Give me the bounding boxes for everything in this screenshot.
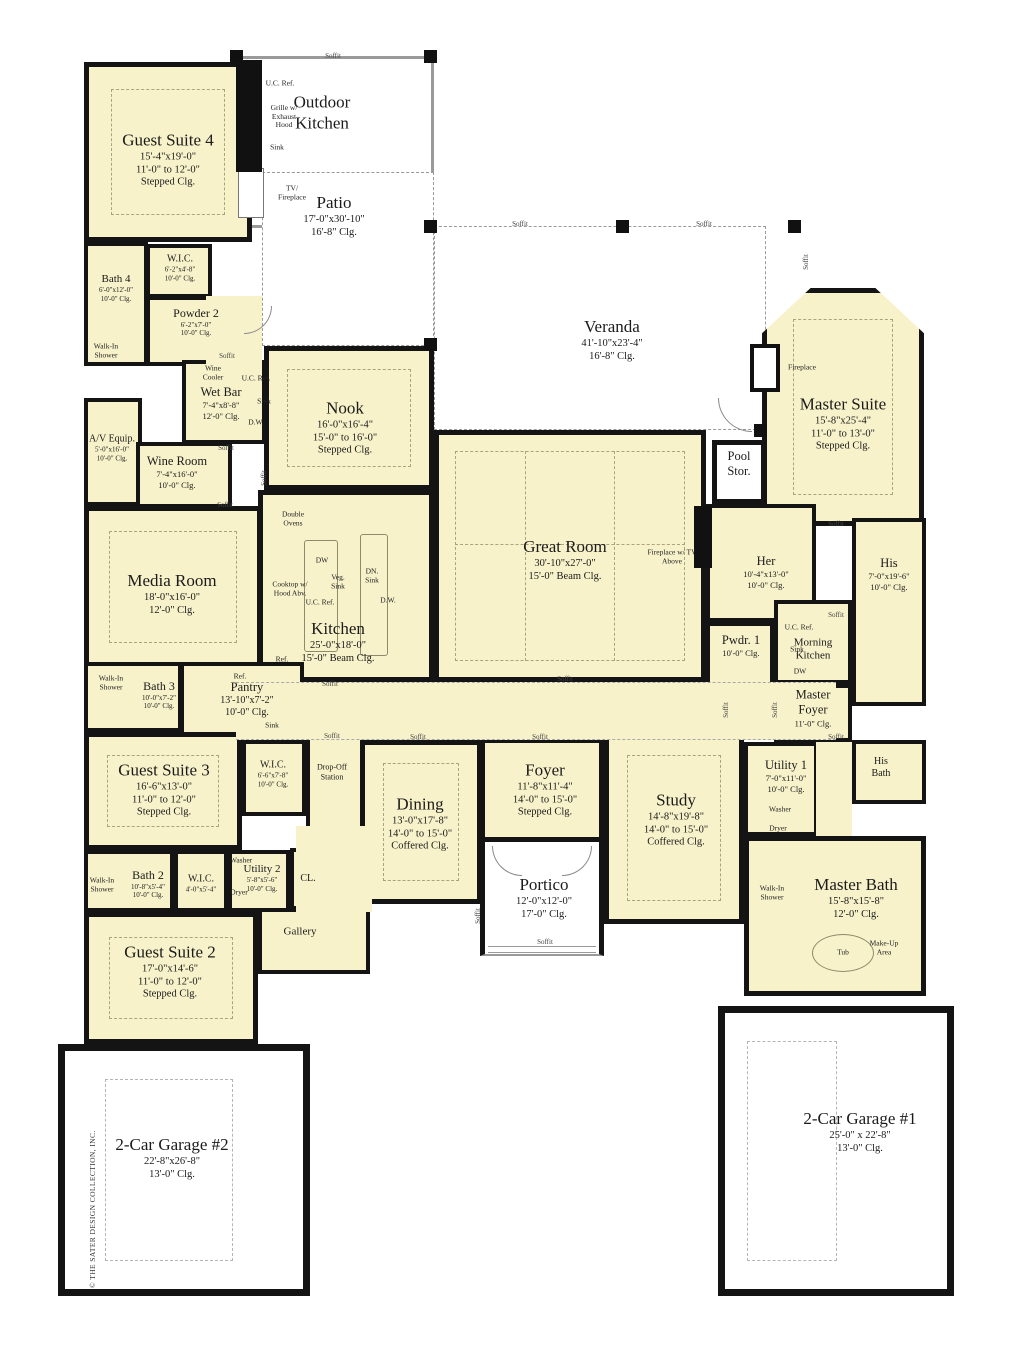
walk-in-shower-label: Walk-In Shower — [753, 884, 791, 901]
walk-in-shower-label: Walk-In Shower — [83, 876, 121, 893]
label-patio: Patio 17'-0"x30'-10" 16'-8" Clg. — [303, 193, 364, 239]
label-garage-1: 2-Car Garage #1 25'-0" x 22'-8" 13'-0" C… — [803, 1109, 916, 1155]
column — [616, 220, 629, 233]
label-his-closet: His 7'-0"x19'-6" 10'-0" Clg. — [868, 556, 909, 592]
fireplace-label: Fireplace — [788, 364, 816, 373]
label-his-bath: His Bath — [866, 756, 896, 780]
veg-sink-label: Veg. Sink — [325, 573, 351, 590]
dw-label: DW — [316, 557, 329, 566]
label-wet-bar: Wet Bar 7'-4"x8'-8" 12'-0" Clg. — [201, 385, 242, 421]
label-veranda: Veranda 41'-10"x23'-4" 16'-8" Clg. — [581, 317, 642, 363]
washer-label: Washer — [230, 857, 252, 866]
label-foyer: Foyer 11'-8"x11'-4" 14'-0" to 15'-0" Ste… — [513, 760, 577, 819]
label-pool-storage: Pool Stor. — [719, 449, 759, 480]
soffit-label: Soffit — [474, 908, 482, 924]
label-utility-2: Utility 2 5'-8"x5'-6" 10'-0" Clg. — [244, 863, 281, 893]
master-fireplace-box — [750, 344, 780, 392]
soffit-label: Soffit — [325, 52, 341, 60]
label-av-equip: A/V Equip. 5'-0"x16'-0" 10'-0" Clg. — [89, 433, 135, 462]
copyright-text: © THE SATER DESIGN COLLECTION, INC. — [88, 1130, 97, 1288]
column — [788, 220, 801, 233]
label-drop-off: Drop-Off Station — [310, 762, 354, 782]
column — [754, 424, 767, 437]
tv-fireplace-label: TV/ Fireplace — [272, 184, 312, 201]
label-gallery: Gallery — [284, 925, 317, 938]
dryer-label: Dryer — [230, 889, 248, 898]
soffit-label: Soffit — [219, 352, 235, 360]
label-master-bath: Master Bath 15'-8"x15'-8" 12'-0" Clg. — [814, 875, 898, 921]
walk-in-shower-label: Walk-In Shower — [92, 674, 130, 691]
label-master-foyer: Master Foyer 11'-0" Clg. — [788, 688, 838, 729]
soffit-label: Soffit — [322, 680, 338, 688]
dryer-label: Dryer — [769, 825, 787, 834]
outdoor-fireplace-box — [238, 168, 264, 218]
soffit-label: Soffit — [512, 220, 528, 228]
wine-cooler-label: Wine Cooler — [197, 364, 229, 381]
label-powder-2: Powder 2 6'-2"x7'-0" 10'-0" Clg. — [173, 306, 219, 338]
soffit-label: Soffit — [217, 501, 233, 509]
label-pantry: Pantry 13'-10"x7'-2" 10'-0" Clg. — [220, 680, 273, 720]
sink-label: Sink — [270, 144, 284, 153]
floor-plan: Guest Suite 4 15'-4"x19'-0" 11'-0" to 12… — [0, 0, 1024, 1359]
label-guest-suite-3: Guest Suite 3 16'-6"x13'-0" 11'-0" to 12… — [118, 760, 210, 819]
label-wine-room: Wine Room 7'-4"x16'-0" 10'-0" Clg. — [147, 454, 207, 490]
soffit-label: Soffit — [260, 470, 268, 486]
label-guest-suite-2: Guest Suite 2 17'-0"x14'-6" 11'-0" to 12… — [124, 942, 216, 1001]
uc-ref-label: U.C. Ref. — [785, 624, 814, 633]
label-bath-3: Bath 3 10'-0"x7'-2" 10'-0" Clg. — [142, 679, 176, 711]
label-master-suite: Master Suite 15'-8"x25'-4" 11'-0" to 13'… — [800, 394, 886, 453]
label-wic-guest-3: W.I.C. 6'-6"x7'-8" 10'-0" Clg. — [258, 759, 289, 788]
label-media-room: Media Room 18'-0"x16'-0" 12'-0" Clg. — [127, 571, 216, 617]
soffit-label: Soffit — [532, 733, 548, 741]
soffit-label: Soffit — [696, 220, 712, 228]
make-up-label: Make-Up Area — [864, 939, 904, 956]
label-dining: Dining 13'-0"x17'-8" 14'-0" to 15'-0" Co… — [388, 794, 452, 853]
cooktop-label: Cooktop w/ Hood Abv. — [270, 580, 310, 597]
uc-ref-label: U.C. Ref. — [306, 599, 335, 608]
soffit-label: Soffit — [218, 444, 234, 452]
ref-label: Ref. — [276, 656, 289, 665]
portico-steps — [488, 946, 596, 953]
label-nook: Nook 16'-0"x16'-4" 15'-0" to 16'-0" Step… — [313, 398, 377, 457]
sink-label: Sink — [790, 646, 804, 655]
label-portico: Portico 12'-0"x12'-0" 17'-0" Clg. — [516, 875, 572, 921]
sink-label: Sink — [265, 722, 279, 731]
column — [230, 50, 243, 63]
soffit-label: Soffit — [828, 611, 844, 619]
uc-ref-label: U.C. Ref. — [266, 80, 295, 89]
sink-label: Sink — [257, 398, 271, 407]
column — [424, 338, 437, 351]
hall-master — [816, 742, 852, 836]
tub-label: Tub — [837, 949, 849, 958]
outdoor-kitchen-wall — [236, 60, 262, 172]
label-wic-guest-4: W.I.C. 6'-2"x4'-8" 10'-0" Clg. — [165, 253, 196, 282]
label-great-room: Great Room 30'-10"x27'-0" 15'-0" Beam Cl… — [523, 537, 607, 583]
label-garage-2: 2-Car Garage #2 22'-8"x26'-8" 13'-0" Clg… — [115, 1135, 228, 1181]
room-gallery — [258, 908, 370, 974]
column — [424, 220, 437, 233]
soffit-label: Soffit — [722, 702, 730, 718]
soffit-label: Soffit — [324, 732, 340, 740]
soffit-label: Soffit — [828, 520, 844, 528]
label-utility-1: Utility 1 7'-0"x11'-0" 10'-0" Clg. — [765, 758, 807, 794]
soffit-label: Soffit — [537, 938, 553, 946]
soffit-label: Soffit — [802, 254, 810, 270]
dw-label: D.W. — [248, 419, 264, 428]
double-ovens-label: Double Ovens — [275, 510, 311, 527]
column — [424, 50, 437, 63]
label-study: Study 14'-8"x19'-8" 14'-0" to 15'-0" Cof… — [644, 790, 708, 849]
dw-label: D.W. — [380, 597, 396, 606]
fireplace-tv-label: Fireplace w/ TV Above — [646, 548, 698, 565]
room-his-closet — [852, 518, 926, 706]
room-drop-off — [306, 732, 364, 832]
label-guest-suite-4: Guest Suite 4 15'-4"x19'-0" 11'-0" to 12… — [122, 130, 214, 189]
grille-label: Grille w/ Exhaust Hood — [263, 104, 305, 130]
label-her-closet: Her 10'-4"x13'-0" 10'-0" Clg. — [743, 554, 788, 590]
ref-label: Ref. — [234, 673, 247, 682]
washer-label: Washer — [769, 806, 791, 815]
hall-front — [296, 826, 372, 912]
soffit-label: Soffit — [410, 733, 426, 741]
label-bath-2: Bath 2 10'-8"x5'-4" 10'-0" Clg. — [131, 868, 165, 900]
soffit-label: Soffit — [557, 675, 573, 683]
label-kitchen: Kitchen 25'-0"x18'-0" 15'-0" Beam Clg. — [302, 619, 375, 665]
label-pwdr-1: Pwdr. 1 10'-0" Clg. — [722, 633, 760, 659]
label-closet: CL. — [300, 873, 315, 885]
walk-in-shower-label: Walk-In Shower — [87, 342, 125, 359]
soffit-label: Soffit — [771, 702, 779, 718]
dn-sink-label: DN. Sink — [360, 567, 384, 584]
dw-label: DW — [794, 668, 807, 677]
uc-ref-label: U.C. Ref. — [242, 375, 271, 384]
label-wic-2: W.I.C. 4'-0"x5'-4" — [186, 874, 216, 895]
label-bath-4: Bath 4 6'-0"x12'-0" 10'-0" Clg. — [99, 273, 133, 303]
soffit-label: Soffit — [828, 733, 844, 741]
